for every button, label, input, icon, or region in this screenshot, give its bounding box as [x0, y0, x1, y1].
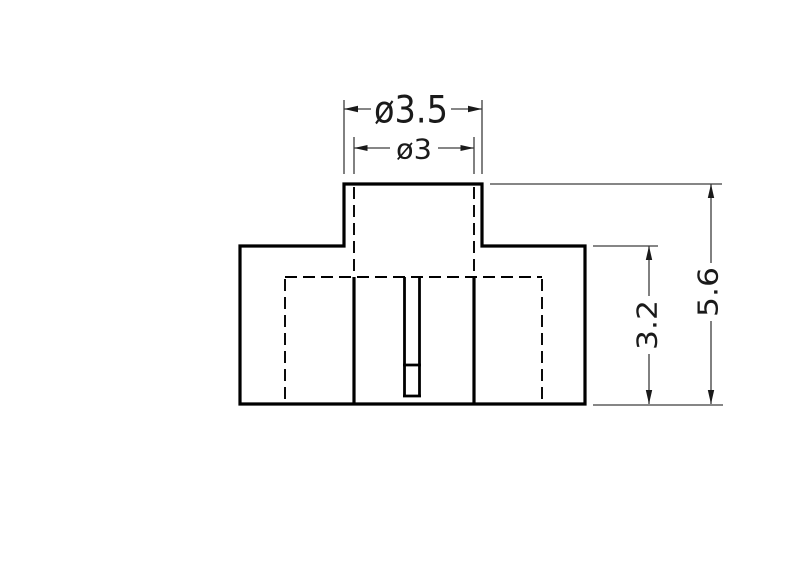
- arrowhead-right-icon: [461, 145, 475, 151]
- dim-label-body-height: 3.2: [631, 300, 664, 350]
- part-outline: [240, 184, 585, 404]
- arrowhead-down-icon: [708, 390, 714, 404]
- hidden-lines: [285, 187, 542, 403]
- arrowhead-up-icon: [646, 246, 652, 260]
- arrowhead-down-icon: [646, 390, 652, 404]
- dim-overall-height: 5.6: [490, 184, 725, 405]
- arrowhead-left-icon: [354, 145, 368, 151]
- center-slot: [403, 277, 421, 396]
- dim-label-outer-diameter: ø3.5: [374, 89, 448, 132]
- arrowhead-right-icon: [468, 106, 482, 112]
- drawing-canvas: ø3.5 ø3 3.2 5.6: [0, 0, 800, 576]
- arrowhead-up-icon: [708, 184, 714, 198]
- arrowhead-left-icon: [344, 106, 358, 112]
- dim-label-overall-height: 5.6: [692, 267, 725, 317]
- technical-drawing: ø3.5 ø3 3.2 5.6: [0, 0, 800, 576]
- dim-body-height: 3.2: [593, 246, 664, 404]
- part-view: [240, 184, 585, 404]
- dim-label-inner-diameter: ø3: [396, 133, 432, 166]
- dim-inner-diameter: ø3: [354, 133, 474, 175]
